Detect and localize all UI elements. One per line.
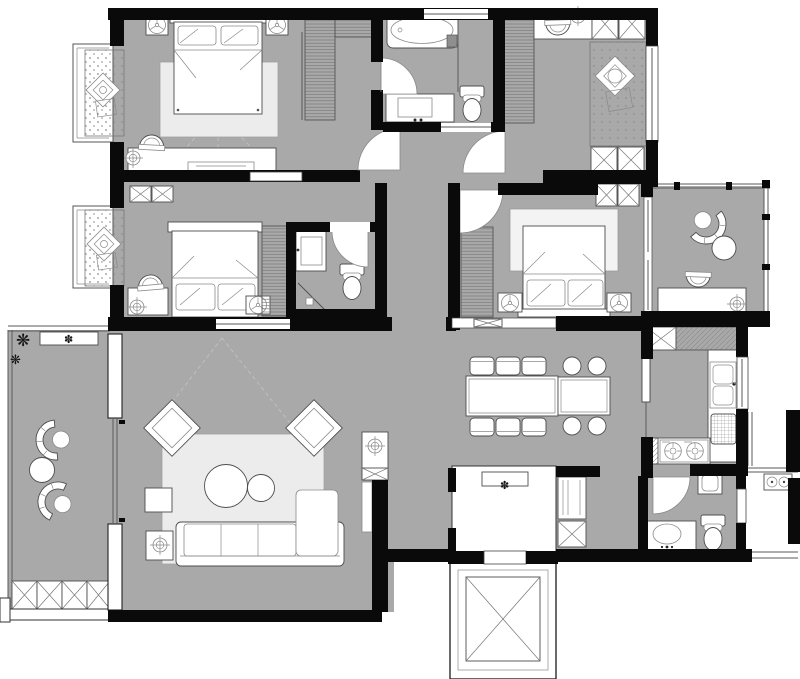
stool <box>588 417 606 435</box>
elevator-shaft <box>450 562 556 679</box>
bath-vanity <box>386 94 454 122</box>
drainer <box>711 414 736 444</box>
planter-boxes <box>12 581 110 609</box>
wardrobe3 <box>461 227 493 317</box>
washer-icon <box>764 474 792 490</box>
tatami-mat <box>590 42 646 146</box>
stool <box>588 357 606 375</box>
ensuite-sink <box>292 231 326 271</box>
floor-plan-drawing: ✽ ❋ ❋ <box>0 0 800 679</box>
guest-vanity <box>646 521 696 551</box>
bay-window-master <box>73 44 124 142</box>
foyer-cabinet <box>558 477 586 547</box>
plant-icon-2: ❋ <box>10 353 21 368</box>
cooktop-counter <box>648 438 710 464</box>
dining-chair <box>496 357 520 375</box>
stool <box>563 357 581 375</box>
balcony-round-table <box>30 458 55 483</box>
bay-window-bedroom2 <box>73 206 124 288</box>
dining-chair <box>470 418 494 436</box>
shower-head <box>447 35 457 47</box>
dining-room <box>466 357 610 436</box>
tatami-wardrobe <box>502 13 534 123</box>
chaise <box>296 490 338 556</box>
dining-table <box>466 376 558 416</box>
kitchen-counter-top <box>676 327 738 350</box>
nightstand3-left <box>498 293 522 312</box>
foyer-flower-icon: ✽ <box>500 479 509 492</box>
balcony-glass-door <box>644 197 652 313</box>
flower-shelf: ✽ <box>40 332 98 346</box>
dining-chair <box>496 418 520 436</box>
island-table <box>558 377 610 415</box>
master-bed <box>170 13 266 114</box>
round-side-table <box>712 236 736 260</box>
bed3 <box>518 226 610 317</box>
nightstand3-right <box>607 293 631 312</box>
double-sink <box>710 362 739 408</box>
dining-chair <box>522 357 546 375</box>
dining-chair <box>522 418 546 436</box>
flower-icon: ✽ <box>64 333 73 346</box>
stool <box>563 417 581 435</box>
plant-icon: ❋ <box>16 331 30 351</box>
kitchen-counter-right <box>708 350 739 462</box>
floor-plan-page: ✽ ❋ ❋ <box>0 0 800 679</box>
entry-foyer: ✽ <box>452 466 586 552</box>
dining-chair <box>470 357 494 375</box>
